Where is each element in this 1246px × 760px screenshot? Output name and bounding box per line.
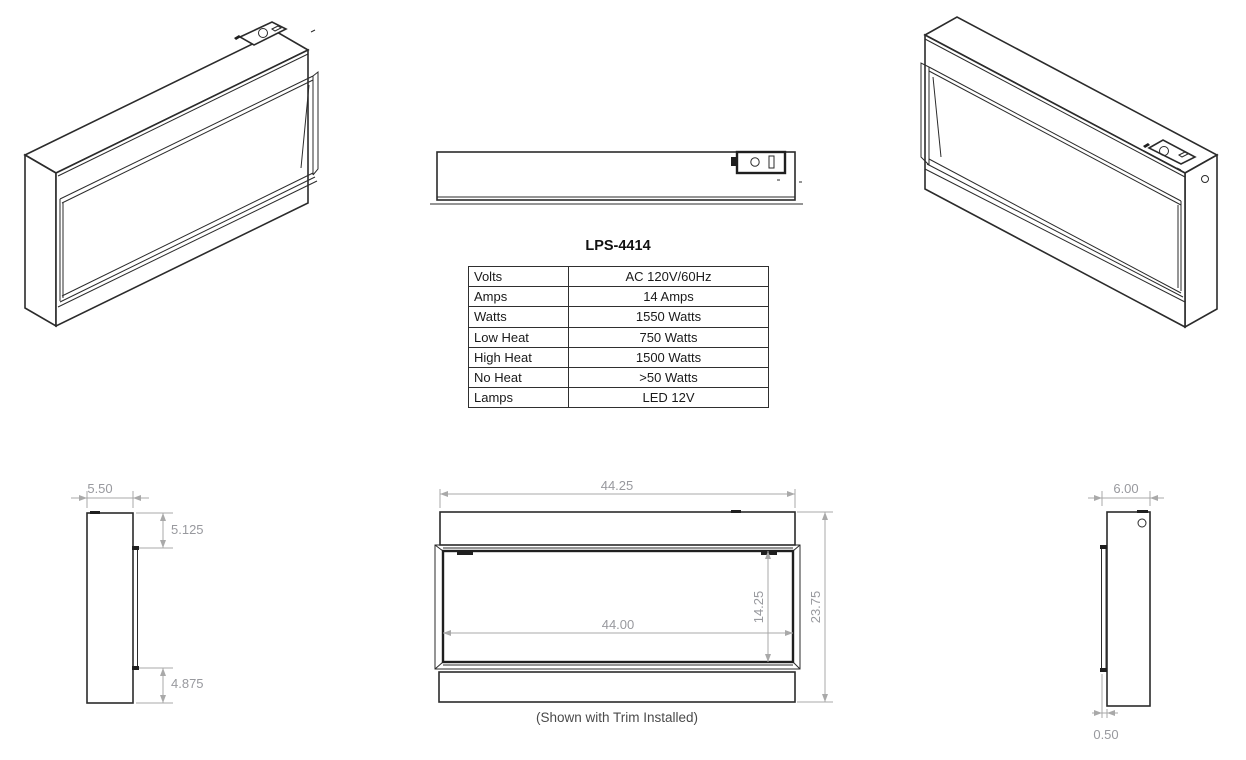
dim-opening-height-label: 14.25 bbox=[751, 591, 766, 624]
dim-overall-height-label: 23.75 bbox=[808, 591, 823, 624]
table-row: Low Heat 750 Watts bbox=[469, 327, 768, 347]
table-row: Amps 14 Amps bbox=[469, 286, 768, 306]
dim-depth-label: 5.50 bbox=[87, 481, 112, 496]
spec-label: High Heat bbox=[469, 348, 569, 367]
spec-value: AC 120V/60Hz bbox=[569, 269, 768, 284]
dimension-top-inset: 5.125 bbox=[136, 513, 204, 548]
dimension-overall-width: 44.25 bbox=[440, 478, 795, 508]
side-view-left: 5.50 5.125 4.875 bbox=[40, 460, 260, 750]
dimension-front-protrusion: 0.50 bbox=[1092, 674, 1119, 742]
spec-label: No Heat bbox=[469, 368, 569, 387]
spec-label: Low Heat bbox=[469, 328, 569, 347]
spec-value: >50 Watts bbox=[569, 370, 768, 385]
spec-table: Volts AC 120V/60Hz Amps 14 Amps Watts 15… bbox=[468, 266, 769, 408]
spec-value: 1500 Watts bbox=[569, 350, 768, 365]
spec-value: LED 12V bbox=[569, 390, 768, 405]
dimension-opening-width: 44.00 bbox=[443, 617, 793, 636]
isometric-view-front-left bbox=[10, 5, 330, 345]
dim-front-protrusion-label: 0.50 bbox=[1093, 727, 1118, 742]
cabinet-body bbox=[925, 17, 1217, 327]
cabinet-side-outline bbox=[87, 511, 139, 703]
table-row: Lamps LED 12V bbox=[469, 387, 768, 407]
dim-bottom-inset-label: 4.875 bbox=[171, 676, 204, 691]
spec-label: Volts bbox=[469, 267, 569, 286]
dim-depth-label: 6.00 bbox=[1113, 481, 1138, 496]
cabinet-body bbox=[25, 32, 308, 326]
cabinet-top-outline bbox=[430, 152, 803, 204]
cabinet-side-outline bbox=[1100, 510, 1150, 706]
isometric-view-front-right bbox=[900, 5, 1240, 345]
spec-value: 14 Amps bbox=[569, 289, 768, 304]
junction-box bbox=[731, 152, 802, 182]
cabinet-front-outline bbox=[435, 510, 800, 702]
front-view-caption: (Shown with Trim Installed) bbox=[536, 710, 698, 725]
dimension-overall-height: 23.75 bbox=[797, 512, 833, 702]
dimension-depth: 5.50 bbox=[71, 481, 149, 508]
table-row: Watts 1550 Watts bbox=[469, 306, 768, 326]
knockout-hole bbox=[1138, 519, 1146, 527]
table-row: Volts AC 120V/60Hz bbox=[469, 267, 768, 286]
side-view-right: 6.00 0.50 bbox=[1060, 460, 1246, 760]
spec-label: Watts bbox=[469, 307, 569, 326]
dimension-bottom-inset: 4.875 bbox=[136, 668, 204, 703]
spec-label: Lamps bbox=[469, 388, 569, 407]
model-title: LPS-4414 bbox=[468, 238, 768, 254]
dimension-depth: 6.00 bbox=[1088, 481, 1164, 506]
spec-value: 1550 Watts bbox=[569, 309, 768, 324]
spec-sheet-page: LPS-4414 Volts AC 120V/60Hz Amps 14 Amps… bbox=[0, 0, 1246, 760]
dimension-opening-height: 14.25 bbox=[751, 551, 771, 662]
top-view bbox=[425, 140, 825, 220]
table-row: No Heat >50 Watts bbox=[469, 367, 768, 387]
spec-value: 750 Watts bbox=[569, 330, 768, 345]
dim-top-inset-label: 5.125 bbox=[171, 522, 204, 537]
spec-label: Amps bbox=[469, 287, 569, 306]
front-view: 44.25 44.00 14.25 23.75 (Shown with Trim… bbox=[400, 460, 860, 760]
dim-opening-width-label: 44.00 bbox=[602, 617, 635, 632]
dim-overall-width-label: 44.25 bbox=[601, 478, 634, 493]
table-row: High Heat 1500 Watts bbox=[469, 347, 768, 367]
